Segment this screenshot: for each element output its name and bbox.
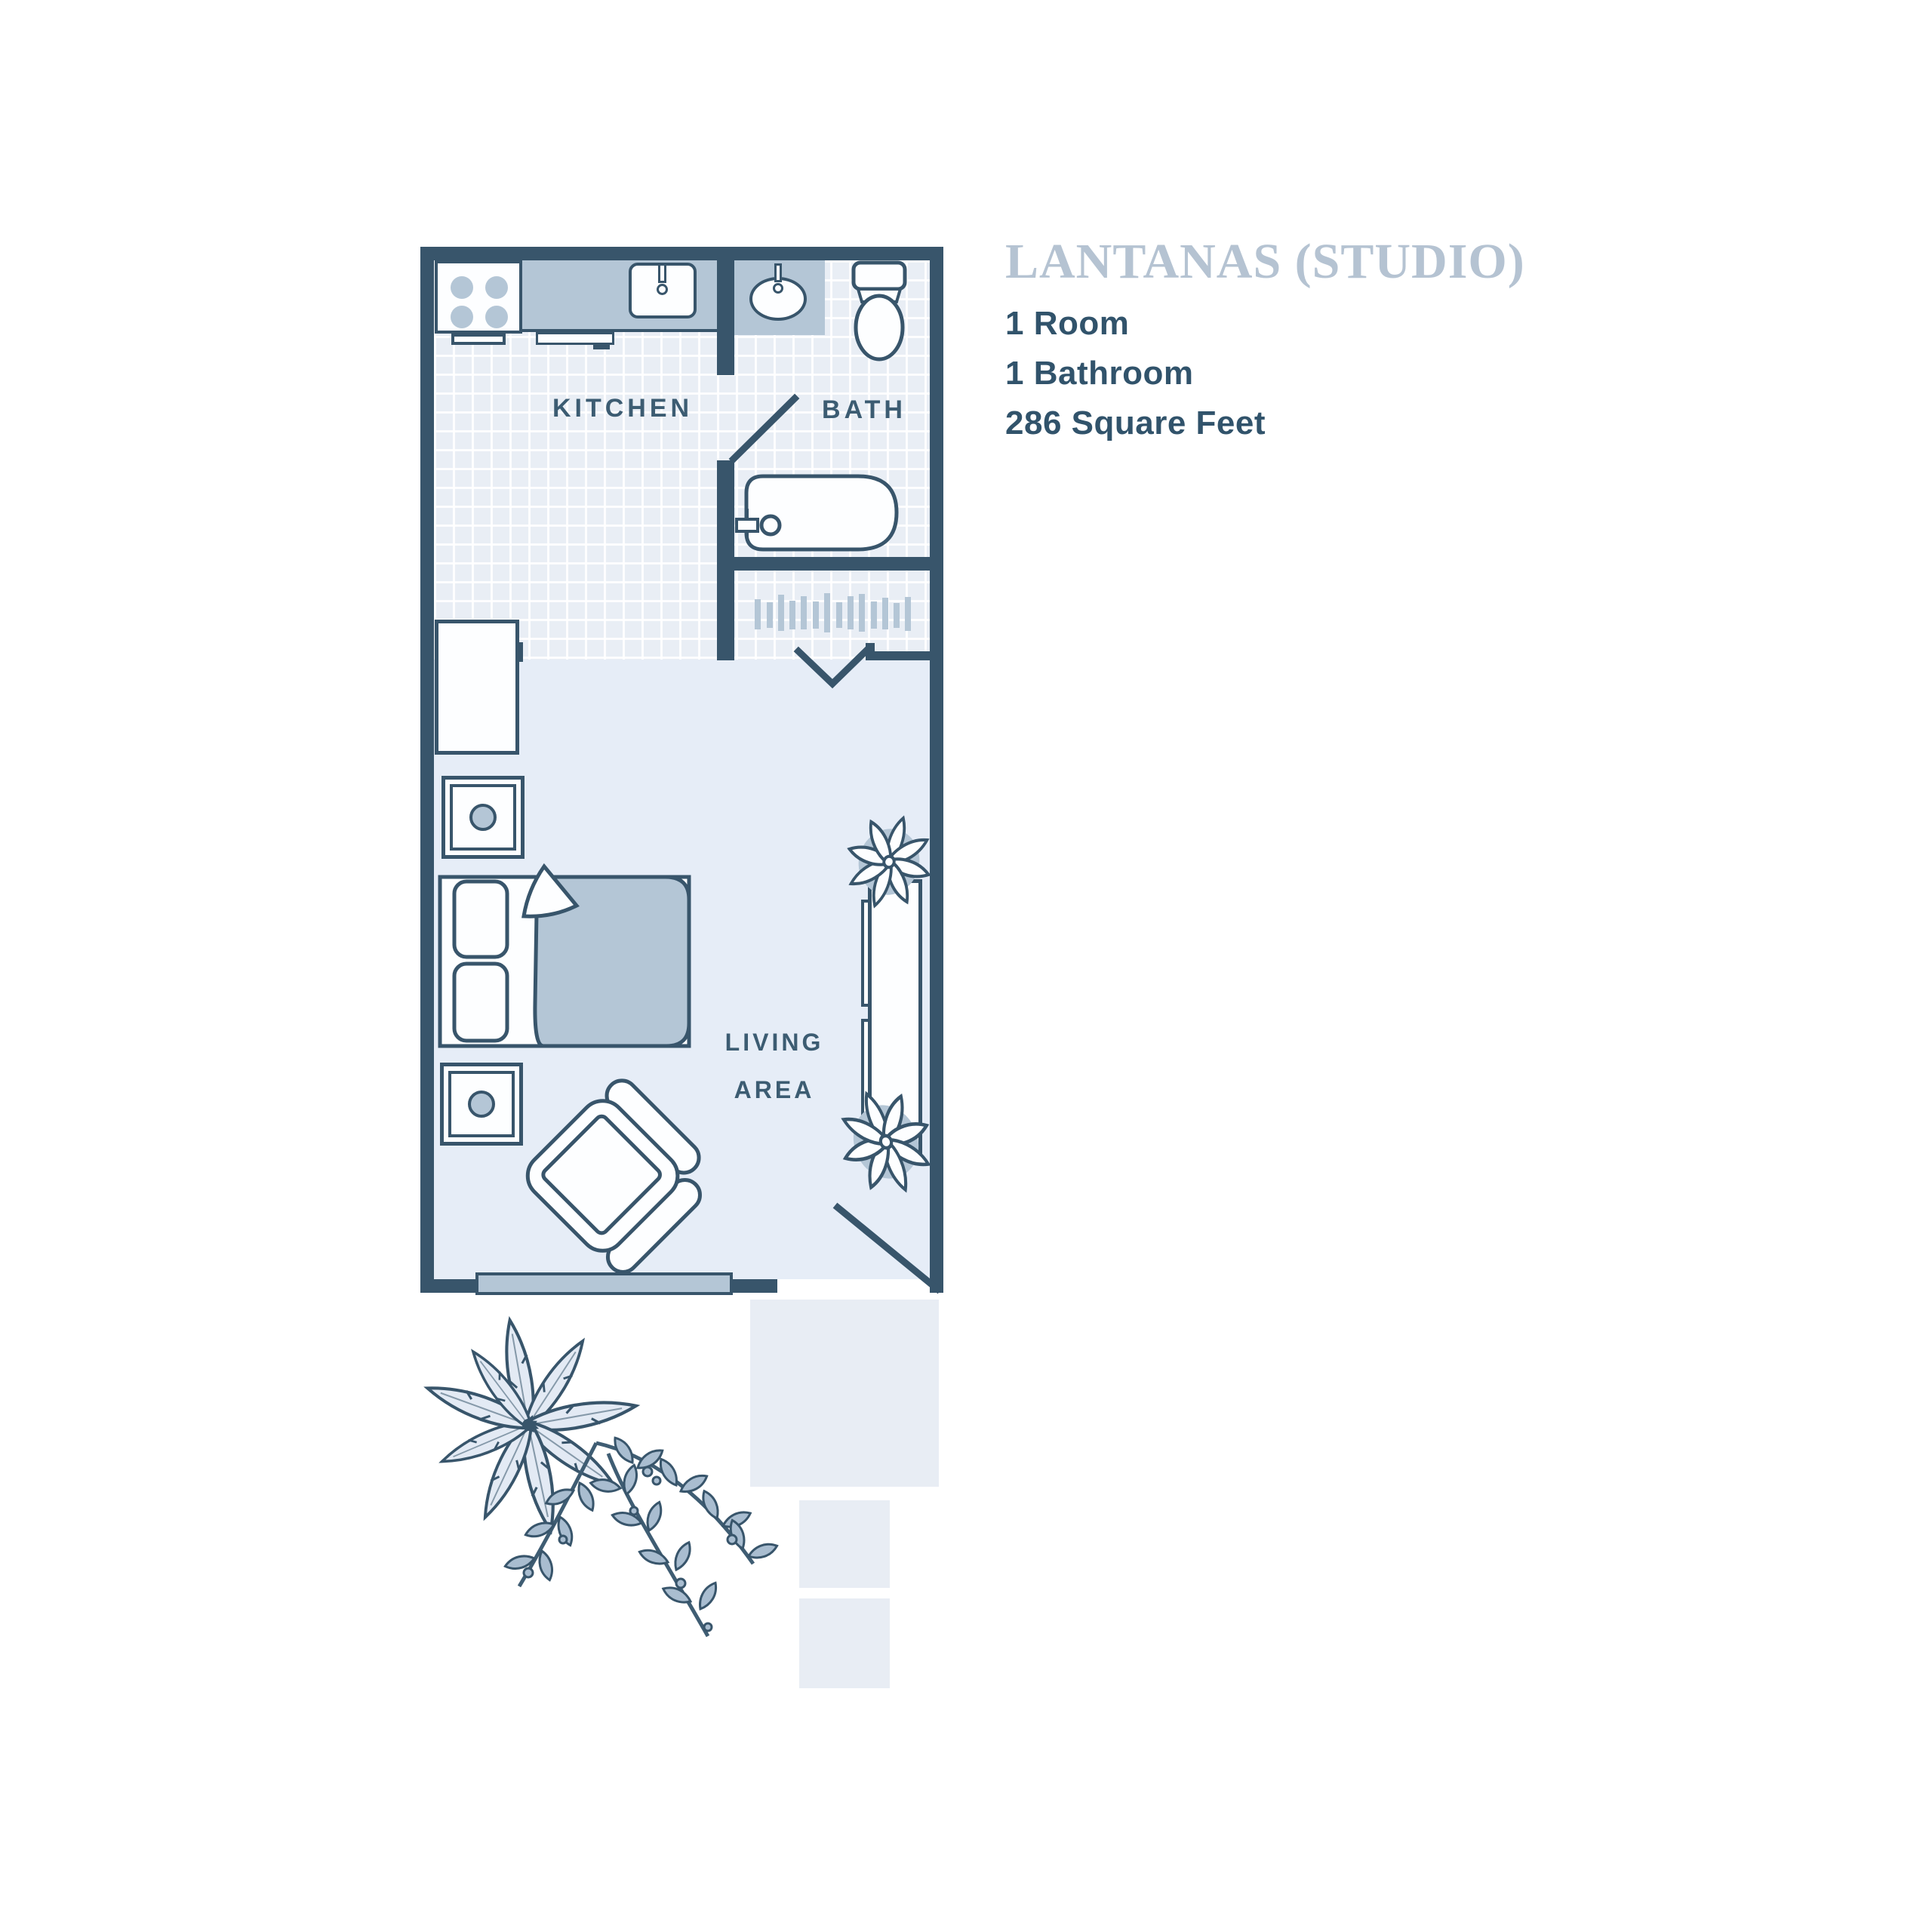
page-title: LANTANAS (STUDIO) — [1005, 237, 1525, 287]
entry-door-icon — [838, 1207, 937, 1289]
detail-square-feet: 286 Square Feet — [1005, 398, 1266, 448]
plan-details: 1 Room 1 Bathroom 286 Square Feet — [1005, 299, 1266, 448]
living-label-line1: LIVING — [699, 1019, 850, 1066]
living-area-label: LIVING AREA — [699, 1019, 850, 1114]
living-label-line2: AREA — [699, 1066, 850, 1114]
bath-door-icon — [734, 398, 795, 459]
detail-rooms: 1 Room — [1005, 299, 1266, 349]
detail-bathrooms: 1 Bathroom — [1005, 349, 1266, 398]
tropical-plant-icon — [408, 1313, 819, 1690]
kitchen-label: KITCHEN — [528, 394, 717, 423]
floor-plan-canvas: LANTANAS (STUDIO) 1 Room 1 Bathroom 286 … — [0, 0, 1932, 1932]
bath-label: BATH — [800, 395, 928, 425]
palm-top-icon — [423, 1318, 638, 1534]
closet-door-icon — [798, 651, 866, 684]
